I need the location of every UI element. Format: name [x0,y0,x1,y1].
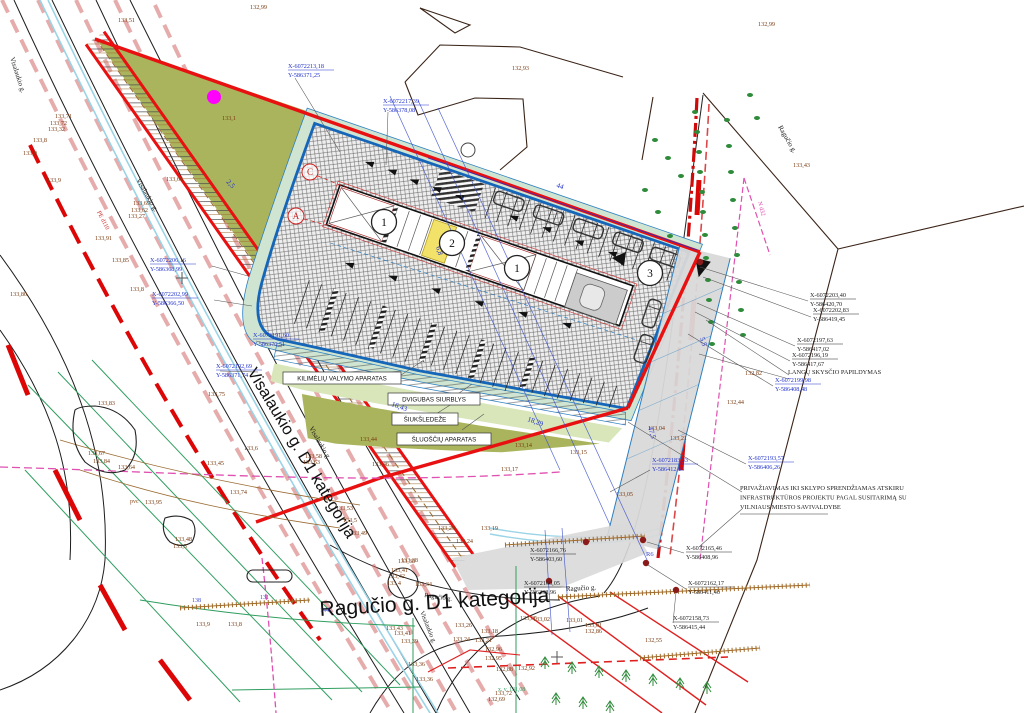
coordinate-x: X-6072202,99 [152,291,188,298]
coordinate-x: X-6072166,76 [530,547,566,554]
coordinate-x: X-6072192,69 [216,363,252,370]
coordinate-y: Y-586370,51 [253,341,285,348]
elevation-label: 133,43 [793,162,810,169]
coordinate-y: Y-586366,50 [152,300,184,307]
elevation-label: 133,5 [343,517,357,524]
coordinate-x: X-6072183,33 [652,457,688,464]
elevation-label: 133,46 [372,461,389,468]
elevation-label: 133,21 [475,637,492,644]
elevation-label: 133,95 [145,499,162,506]
site-plan-drawing: Visalaukio g. D1 kategorija Ragučio g. D… [0,0,1024,713]
coordinate-x: X-6072191,60 [253,332,289,339]
grid-letter: C [307,167,313,177]
elevation-label: 132,82 [745,370,762,377]
elevation-label: 133,9 [196,621,210,628]
elevation-label: 133,64 [118,464,135,471]
elevation-label: 133,74 [230,489,247,496]
coordinate-y: Y-586378,08 [383,107,415,114]
note-line: VILNIAUS MIESTO SAVIVALDYBE [740,504,841,511]
elevation-label: 133,80 [10,291,27,298]
coordinate-x: X-6072206,16 [150,257,186,264]
elevation-label: 133,05 [616,491,633,498]
terrain-contours [405,8,653,170]
coordinate-y: Y-586368,99 [150,266,182,273]
elevation-label: 133,66 [166,176,183,183]
elevation-label: 133,34 [415,581,432,588]
coordinate-x: X-6072203,40 [810,292,846,299]
elevation-label: 132,96 [485,646,502,653]
section-number: 1 [381,217,387,229]
elevation-label: 132,44 [727,399,744,406]
elevation-label: 133,02 [533,616,550,623]
elevation-label: 133,9 [47,177,61,184]
magenta-point [207,90,221,104]
coordinate-x: X-6072217,39 [383,98,419,105]
tree-symbols [541,657,711,713]
elevation-label: 133,49 [350,530,367,537]
section-number: 1 [514,263,520,275]
elevation-label: 133,14 [515,442,532,449]
utilitie-label: x. v. 131,08 [498,687,525,693]
elevation-label: 133,27 [128,213,145,220]
elevation-label: 132,95 [485,655,502,662]
utilitie-label: R6 [646,551,654,558]
section-number: 2 [449,238,455,250]
elevation-label: 133,15 [570,449,587,456]
coordinate-x: X-6072158,73 [673,615,709,622]
elevation-label: 133,17 [501,466,518,473]
utilitie-label: 138 [192,598,201,604]
elevation-label: 132,92 [518,665,535,672]
elevation-label: 133,24 [456,538,473,545]
coordinate-y: Y-586417,67 [792,361,824,368]
equipment-label: ŠLUOŠČIŲ APARATAS [412,437,477,444]
equipment-label: ŠIUKŠLEDEŽE [404,416,447,424]
coordinate-y: Y-586403,60 [530,556,562,563]
manhole-circle [461,143,475,157]
coordinate-x: X-6072196,19 [792,352,828,359]
note-privaziavimas: PRIVAŽIAVIMAS IKI SKLYPO SPRENDŽIAMAS AT… [740,484,907,514]
elevation-label: 133,84 [93,458,110,465]
utilitie-label: pvc [130,499,139,505]
elevation-label: 133,48 [175,536,192,543]
elevation-label: 133,67 [88,450,105,457]
utilitie-label: N d32 [756,201,766,217]
elevation-label: 133,01 [585,622,602,629]
street-title-ragucio: Ragučio g. D1 kategorija [319,584,550,621]
elevation-label: 132,99 [758,21,775,28]
coordinate-y: Y-586371,74 [216,372,248,379]
equipment-label: DVIGUBAS SIURBLYS [402,397,466,404]
coordinate-x: X-6072199,98 [775,377,811,384]
coordinate-y: Y-586411,40 [688,589,720,596]
street-label: Visalaukio g. [8,56,27,94]
note-line: PRIVAŽIAVIMAS IKI SKLYPO SPRENDŽIAMAS AT… [740,484,904,492]
utilitie-label: 131 [260,595,269,601]
coordinate-x: X-6072165,46 [686,545,722,552]
elevation-label: 133,4 [387,580,401,587]
coordinate-x: X-6072213,18 [288,63,324,70]
street-label: Ragučio g. [776,124,798,154]
section-number: 3 [647,268,653,280]
coordinate-x: X-6072202,83 [813,307,849,314]
elevation-label: 133,24 [453,636,470,643]
elevation-label: 133,29 [438,525,455,532]
elevation-label: 133,71 [55,113,72,120]
elevation-label: 133,3 [173,543,187,550]
elevation-label: 133,39 [401,638,418,645]
coordinate-y: Y-586412,63 [652,466,684,473]
elevation-label: 133,44 [360,436,377,443]
elevation-label: 133,85 [112,257,129,264]
note-line: INFRASTRUKTŪROS PROJEKTU PAGAL SUSITARIM… [740,495,907,502]
note-langu-skyscio: LANGŲ SKYSČIO PAPILDYMAS [788,368,882,376]
elevation-label: 133,26 [455,622,472,629]
coordinate-y: Y-586419,45 [813,316,845,323]
dim-label: 44 [555,181,565,191]
coordinate-y: Y-586408,96 [686,554,718,561]
elevation-label: 133,75 [208,391,225,398]
utilitie-label: PE d110 [95,210,110,231]
elevation-label: 133,6 [244,445,258,452]
elevation-label: 133,36 [416,676,433,683]
elevation-label: 133,01 [566,617,583,624]
elevation-label: 133,51 [118,17,135,24]
equipment-label: KILIMĖLIŲ VALYMO APARATAS [297,376,387,383]
coordinate-y: Y-586398,96 [524,589,556,596]
elevation-label: 133,38 [398,558,415,565]
coordinate-x: X-6072162,17 [688,580,724,587]
elevation-label: 133,63 [303,459,320,466]
elevation-label: 133,18 [481,628,498,635]
elevation-label: 133,8 [130,286,144,293]
elevation-label: 133,19 [481,525,498,532]
street-label: Ragučio g. [566,583,597,593]
elevation-label: 133,91 [95,235,112,242]
coordinate-y: Y-586415,44 [673,624,705,631]
elevation-label: 133,1 [222,115,236,122]
coordinate-x: X-6072197,63 [797,337,833,344]
elevation-label: 133,41 [394,630,411,637]
site-plan-canvas: Visalaukio g. D1 kategorija Ragučio g. D… [0,0,1024,713]
elevation-label: 133,53 [336,505,353,512]
coordinate-x: X-6072160,05 [524,580,560,587]
elevation-label: 132,93 [512,65,529,72]
elevation-label: 132,88 [496,666,513,673]
utilitie-label: 144 [320,608,329,614]
elevation-label: 133,83 [98,400,115,407]
coordinate-y: Y-586371,25 [288,72,320,79]
elevation-label: 132,86 [585,628,602,635]
elevation-label: 133,36 [408,661,425,668]
coordinate-x: X-6072193,57 [748,455,784,462]
road-network-ragucio [658,93,1024,713]
elevation-label: 132,99 [250,4,267,11]
elevation-label: 132,55 [645,637,662,644]
elevation-label: 132,69 [488,696,505,703]
elevation-label: 133,8 [228,621,242,628]
elevation-label: 133,42 [388,573,405,580]
elevation-label: 133,8 [33,137,47,144]
elevation-label: 133,45 [207,460,224,467]
elevation-label: 133,21 [670,435,687,442]
grid-letter: A [293,211,300,221]
elevation-label: 133,9 [23,150,37,157]
coordinate-y: Y-586406,26 [748,464,780,471]
elevation-label: 133,32 [48,126,65,133]
coordinate-y: Y-586408,48 [775,386,807,393]
